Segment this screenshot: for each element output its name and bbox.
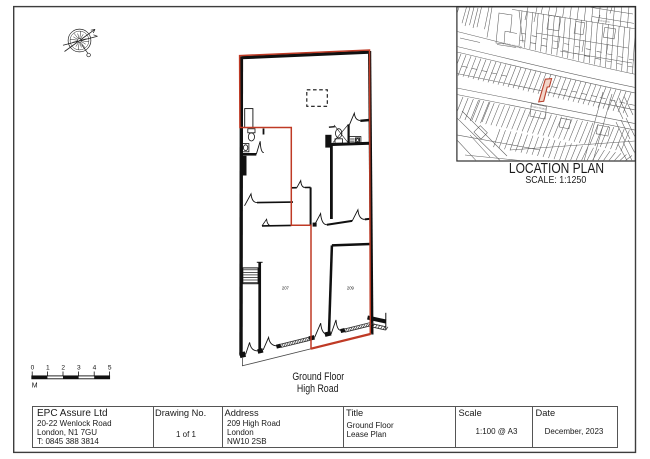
svg-text:4: 4: [93, 365, 97, 372]
svg-text:207: 207: [282, 286, 290, 291]
svg-text:Linden Road: Linden Road: [530, 104, 547, 111]
svg-text:3: 3: [77, 365, 81, 372]
svg-text:1: 1: [46, 365, 50, 372]
svg-text:HIGH ROAD: HIGH ROAD: [505, 42, 523, 50]
svg-text:0: 0: [31, 365, 35, 372]
svg-text:2: 2: [61, 365, 65, 372]
svg-text:209: 209: [347, 286, 355, 291]
svg-text:5: 5: [108, 365, 112, 372]
svg-text:M: M: [32, 382, 38, 389]
